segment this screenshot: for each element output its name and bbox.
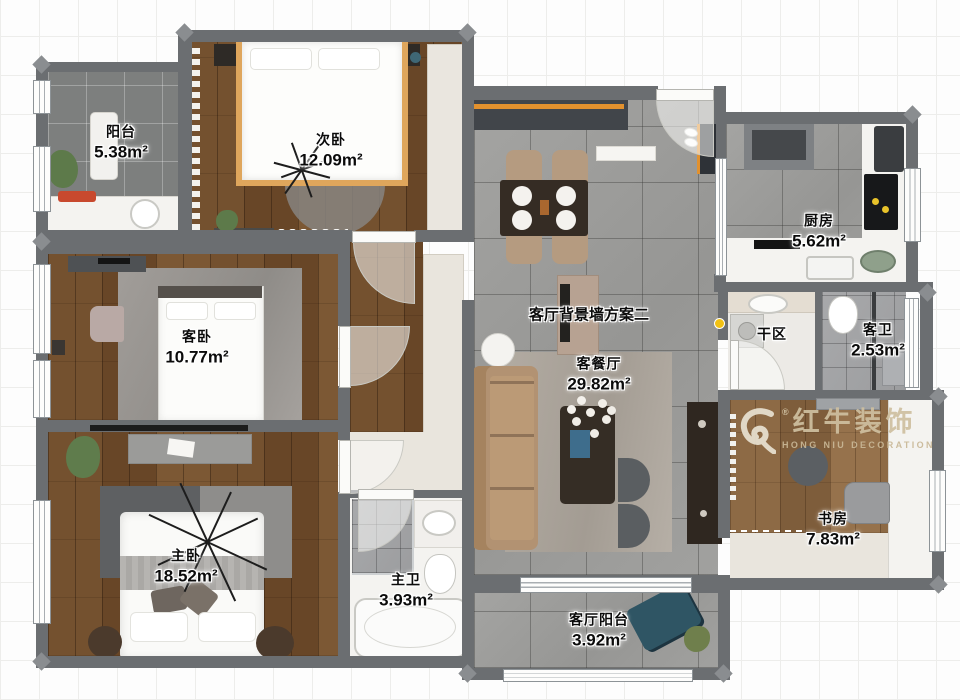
decor-paper <box>167 438 195 457</box>
window <box>33 360 51 418</box>
cooktop <box>752 130 806 160</box>
washbasin <box>748 294 788 314</box>
window <box>503 669 693 682</box>
pillow <box>318 48 380 70</box>
room-label-bedroom-master: 主卧18.52m² <box>154 546 217 587</box>
registered-mark: ® <box>782 407 793 417</box>
monitor <box>98 258 130 264</box>
room-label-balcony-north: 阳台5.38m² <box>94 122 148 163</box>
wall <box>186 30 474 42</box>
wall <box>718 578 944 590</box>
wall <box>36 230 352 242</box>
stove <box>864 174 898 230</box>
wall <box>714 112 918 124</box>
pillow <box>198 612 256 642</box>
wall <box>36 656 474 668</box>
stove-burner <box>872 198 879 205</box>
opening-dashline <box>730 530 806 532</box>
wall <box>920 292 933 398</box>
wall <box>718 292 728 340</box>
floorplan-canvas: ®红牛装饰 HONG NIU DECORATION 阳台5.38m² 次卧12.… <box>0 0 960 700</box>
headboard <box>158 286 262 298</box>
washing-machine-top <box>58 191 96 202</box>
sliding-door <box>715 158 727 276</box>
watermark-en: HONG NIU DECORATION <box>782 440 935 450</box>
tv-wall-annotation: 客厅背景墙方案二 <box>529 304 649 325</box>
room-label-bath-master: 主卫3.93m² <box>379 570 433 611</box>
stove-burner <box>882 206 889 213</box>
room-label-bath-guest: 客卫2.53m² <box>851 320 905 361</box>
decor-bowl <box>410 52 421 63</box>
washbasin <box>422 510 456 536</box>
tv-strip <box>90 425 248 431</box>
window <box>929 470 946 552</box>
window <box>33 500 51 624</box>
wall <box>462 300 474 668</box>
accent-strip <box>472 104 624 109</box>
wall <box>718 400 730 538</box>
plate <box>512 210 532 230</box>
door-leaf <box>730 340 739 390</box>
wall <box>338 432 350 440</box>
console-shelf <box>596 146 656 161</box>
window <box>904 298 919 388</box>
decor-item <box>700 510 707 517</box>
wall <box>338 386 350 420</box>
door-leaf <box>339 440 351 494</box>
room-label-bedroom-guest: 客卧10.77m² <box>165 327 228 368</box>
stool <box>88 626 122 658</box>
fridge <box>874 126 904 172</box>
wardrobe <box>427 44 464 232</box>
side-table <box>52 340 65 355</box>
window <box>520 577 692 593</box>
wall <box>726 282 933 292</box>
bathtub-basin <box>364 606 456 648</box>
lounge-chair <box>90 306 124 342</box>
window <box>33 80 51 114</box>
wall <box>815 292 822 392</box>
table-decor <box>570 430 590 458</box>
door-leaf <box>656 89 714 101</box>
wall <box>714 274 726 292</box>
dish <box>860 250 896 273</box>
wall <box>414 230 474 242</box>
watermark: ®红牛装饰 HONG NIU DECORATION <box>738 408 935 454</box>
wall <box>178 30 192 242</box>
plant <box>66 436 100 478</box>
room-label-bedroom-second: 次卧12.09m² <box>299 130 362 171</box>
floor-lamp <box>481 333 515 367</box>
plate <box>556 210 576 230</box>
balcony-sink <box>130 199 160 229</box>
plant <box>48 150 78 188</box>
yellow-marker <box>714 318 725 329</box>
centerpiece <box>540 200 549 215</box>
room-label-study: 书房7.83m² <box>806 509 860 550</box>
plate <box>556 186 576 206</box>
decor-item <box>698 420 706 428</box>
watermark-cn: ®红牛装饰 <box>782 408 935 438</box>
sofa-cushions <box>490 376 534 540</box>
room-label-kitchen: 厨房5.62m² <box>792 211 846 252</box>
window <box>904 168 921 242</box>
wall <box>36 242 350 254</box>
window <box>33 264 51 354</box>
storage-cabinet <box>467 98 628 130</box>
wall <box>338 492 350 668</box>
wall <box>714 86 726 112</box>
pillow <box>130 612 188 642</box>
hallway-closet <box>423 254 464 434</box>
pillow <box>250 48 312 70</box>
curtain <box>730 412 736 500</box>
washer-door <box>738 322 756 340</box>
chandelier <box>586 408 595 417</box>
wall <box>462 100 474 240</box>
plate <box>512 186 532 206</box>
room-label-balcony-living: 客厅阳台3.92m² <box>569 610 629 651</box>
wall <box>36 62 186 72</box>
wall <box>412 490 462 498</box>
room-label-dry-area: 干区 <box>757 324 787 344</box>
door-leaf <box>352 231 416 243</box>
wall <box>462 86 658 100</box>
window <box>33 146 51 212</box>
room-label-living-dining: 客餐厅29.82m² <box>567 354 630 395</box>
door-leaf <box>339 326 351 388</box>
pillow <box>166 302 208 320</box>
kitchen-sink <box>806 256 854 280</box>
hongniu-logo-icon <box>738 408 776 454</box>
door-leaf <box>358 489 414 500</box>
pillow <box>214 302 256 320</box>
stool <box>256 626 294 660</box>
curtain <box>192 48 200 230</box>
wall <box>338 254 350 326</box>
